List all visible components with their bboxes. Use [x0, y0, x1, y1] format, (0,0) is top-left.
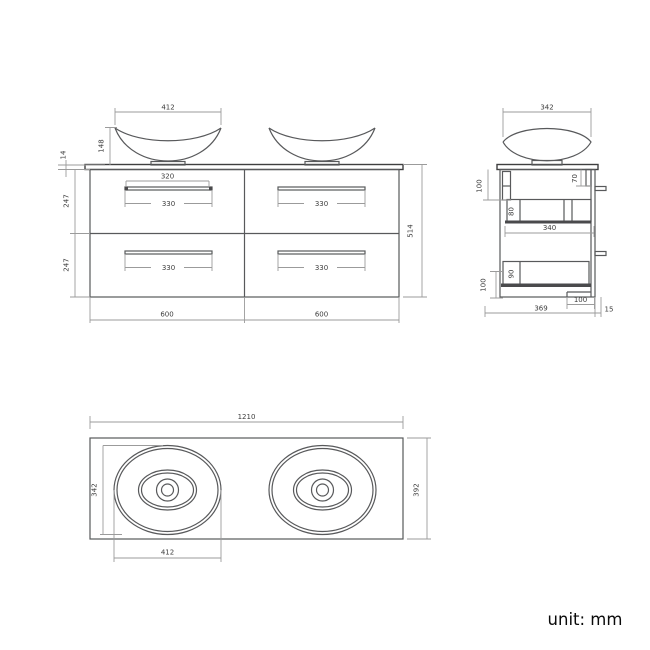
dim-lower-drawer-side: 90: [508, 270, 516, 279]
plan-basin-right: [269, 446, 376, 535]
dim-label: 330: [162, 264, 175, 272]
dim-handle-width-bl: 330: [125, 254, 212, 272]
wall-bracket-upper: [595, 187, 606, 191]
dim-label: 100: [574, 296, 587, 304]
dim-handle-width-tl: 330: [125, 190, 212, 208]
drain-outer: [157, 479, 179, 501]
front-view: 412 148 14 247 247 514 600 600: [58, 104, 427, 324]
basin-lens-profile: [503, 129, 591, 161]
basin-rim-curve: [115, 128, 221, 141]
dim-label: 15: [605, 306, 614, 314]
basin-inner-rim: [117, 449, 218, 532]
side-basin: [503, 129, 591, 166]
basin-bowl-outer: [139, 470, 197, 510]
basin-bowl-inner: [142, 473, 194, 507]
handle-bottom-right: [278, 251, 365, 254]
dim-side-back-offset: 15: [595, 297, 613, 317]
handle-top-left: [125, 187, 212, 190]
front-countertop: [85, 165, 403, 170]
dim-label: 342: [540, 104, 553, 112]
dim-label-right: 600: [315, 311, 328, 319]
handle-bottom-left: [125, 251, 212, 254]
basin-bowl-curve: [269, 128, 375, 161]
dim-upper-drawer-side: 80: [508, 207, 516, 216]
plan-view: 1210 342 392 412: [90, 413, 431, 562]
dim-label: 320: [161, 173, 174, 181]
basin-bowl-inner: [297, 473, 349, 507]
back-rail-bracket: [586, 170, 591, 187]
dim-front-drawer-rows: 247 247: [63, 170, 91, 298]
basin-bowl-outer: [294, 470, 352, 510]
dim-label: 412: [161, 549, 174, 557]
dim-label: 1210: [238, 413, 256, 421]
dim-label: 100: [480, 278, 488, 291]
wall-bracket-lower: [595, 252, 606, 256]
dim-handle-width-br: 330: [278, 254, 365, 272]
front-basin-right: [269, 128, 375, 165]
handle-endcap: [125, 187, 129, 191]
side-view: 342 100 70 80 340 90 100 100: [476, 104, 614, 318]
vanity-dimension-drawing: 412 148 14 247 247 514 600 600: [0, 0, 650, 650]
dim-plan-total-width: 1210: [90, 413, 403, 429]
lower-drawer-box: [503, 262, 589, 285]
dim-side-recess-depth: 100: [567, 296, 595, 309]
dim-label: 100: [476, 179, 484, 192]
drain-inner: [162, 484, 174, 496]
dim-label-left: 600: [160, 311, 173, 319]
dim-label: 14: [60, 150, 68, 159]
upper-drawer-ribs: [520, 200, 572, 222]
drain-outer: [312, 479, 334, 501]
dim-label: 148: [98, 139, 106, 152]
dim-plan-countertop-depth: 392: [407, 438, 431, 539]
basin-pedestal: [151, 162, 185, 166]
dim-front-countertop-thickness: 14: [58, 150, 85, 177]
dim-side-basin-depth: 342: [503, 104, 591, 138]
dim-front-basin-height: 148: [85, 128, 117, 166]
handle-endcap: [209, 187, 213, 191]
dim-label-top: 247: [63, 194, 71, 207]
dim-label: 330: [315, 264, 328, 272]
technical-drawing-page: 412 148 14 247 247 514 600 600: [0, 0, 650, 650]
basin-rim-curve: [269, 128, 375, 141]
dim-label: 392: [413, 483, 421, 496]
handle-top-right: [278, 187, 365, 190]
dim-front-basin-width: 412: [115, 104, 221, 126]
dim-label: 330: [162, 200, 175, 208]
plan-basin-left: [114, 446, 221, 535]
dim-label-bottom: 247: [63, 258, 71, 271]
dim-side-back-bracket: 70: [571, 170, 591, 187]
dim-handle-span: 320: [126, 173, 209, 188]
dim-label: 342: [91, 483, 99, 496]
dim-side-internal-depth: 340: [505, 224, 594, 237]
dim-label: 340: [543, 224, 556, 232]
dim-label: 412: [161, 104, 174, 112]
dim-label: 330: [315, 200, 328, 208]
dim-label: 369: [534, 305, 547, 313]
lower-drawer-bottom: [501, 284, 591, 288]
dim-label: 70: [571, 174, 579, 183]
unit-label: unit: mm: [548, 610, 623, 629]
basin-pedestal: [305, 162, 339, 166]
basin-outer-rim: [114, 446, 221, 535]
dim-plan-basin-depth: 342: [91, 446, 164, 535]
drain-inner: [317, 484, 329, 496]
dim-handle-width-tr: 330: [278, 190, 365, 208]
basin-outer-rim: [269, 446, 376, 535]
dim-front-cabinet-widths: 600 600: [90, 297, 399, 323]
front-basin-left: [115, 128, 221, 165]
basin-inner-rim: [272, 449, 373, 532]
dim-front-total-height: 514: [403, 165, 427, 298]
basin-bowl-curve: [115, 128, 221, 161]
dim-side-top-bracket: 100: [476, 170, 512, 201]
dim-label: 514: [407, 224, 415, 238]
